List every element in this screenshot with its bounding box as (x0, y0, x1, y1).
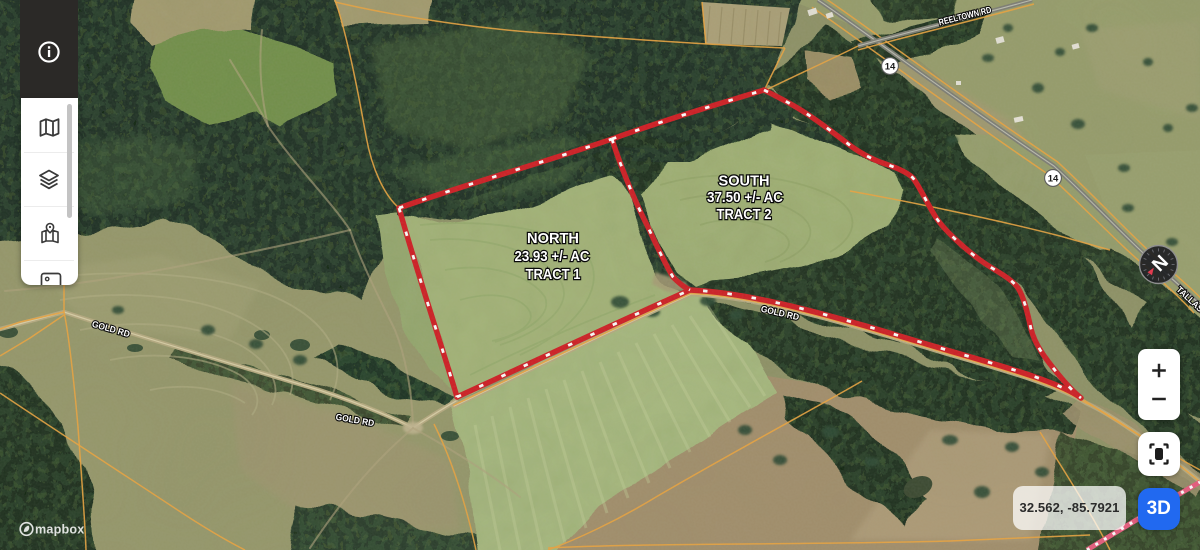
svg-text:mapbox: mapbox (35, 523, 84, 537)
svg-text:14: 14 (1048, 174, 1059, 185)
svg-text:TRACT 1: TRACT 1 (526, 266, 581, 283)
svg-text:23.93 +/- AC: 23.93 +/- AC (515, 248, 590, 265)
svg-text:NORTH: NORTH (527, 230, 579, 247)
svg-text:37.50 +/- AC: 37.50 +/- AC (707, 189, 783, 206)
svg-text:14: 14 (885, 62, 896, 73)
svg-text:TRACT 2: TRACT 2 (717, 206, 772, 223)
svg-text:SOUTH: SOUTH (719, 173, 770, 190)
